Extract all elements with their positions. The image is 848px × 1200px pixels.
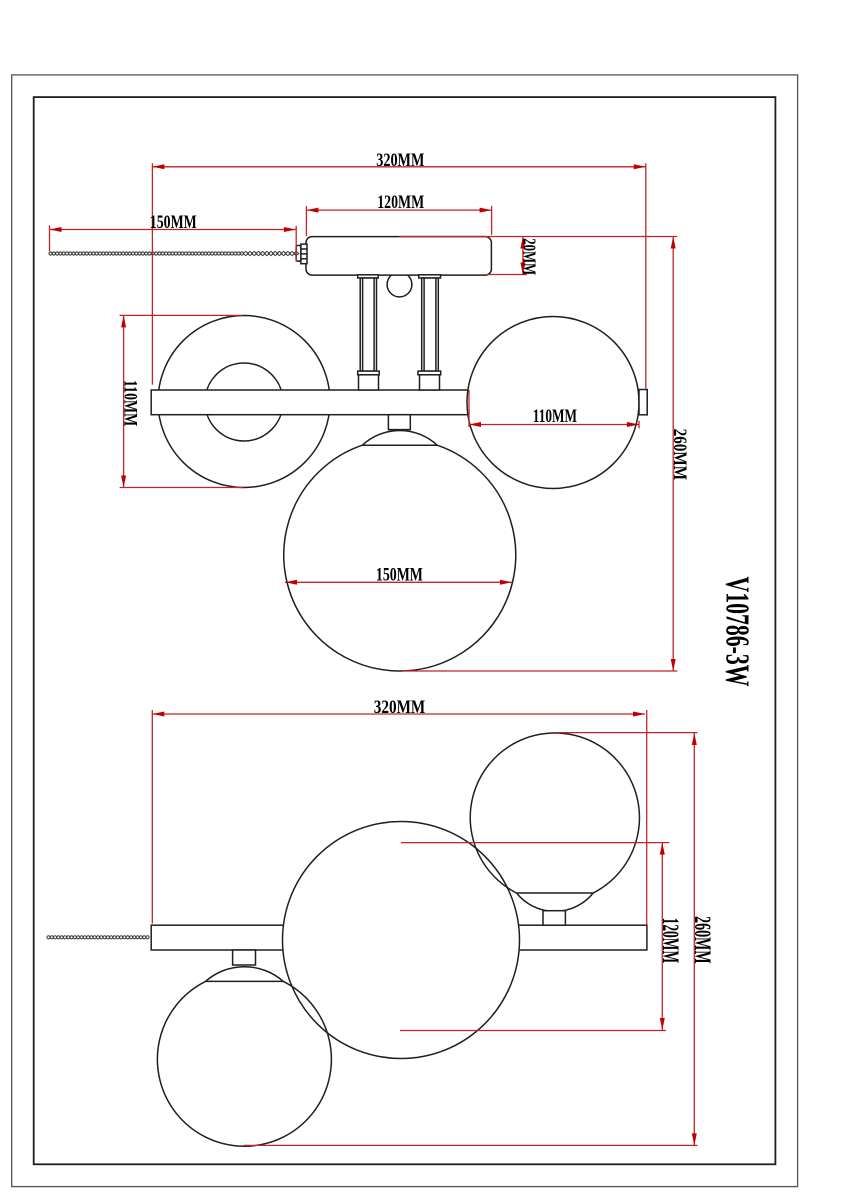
svg-text:110MM: 110MM [120,380,142,426]
svg-text:320MM: 320MM [376,149,424,170]
svg-text:260MM: 260MM [670,429,691,480]
svg-text:150MM: 150MM [376,563,423,585]
svg-text:260MM: 260MM [689,916,714,964]
svg-text:150MM: 150MM [150,211,197,233]
svg-text:20MM: 20MM [519,238,539,275]
svg-text:110MM: 110MM [533,405,577,427]
svg-text:320MM: 320MM [374,696,425,717]
svg-text:120MM: 120MM [377,191,424,213]
svg-text:V10786-3W: V10786-3W [718,577,755,687]
svg-text:120MM: 120MM [657,918,683,964]
